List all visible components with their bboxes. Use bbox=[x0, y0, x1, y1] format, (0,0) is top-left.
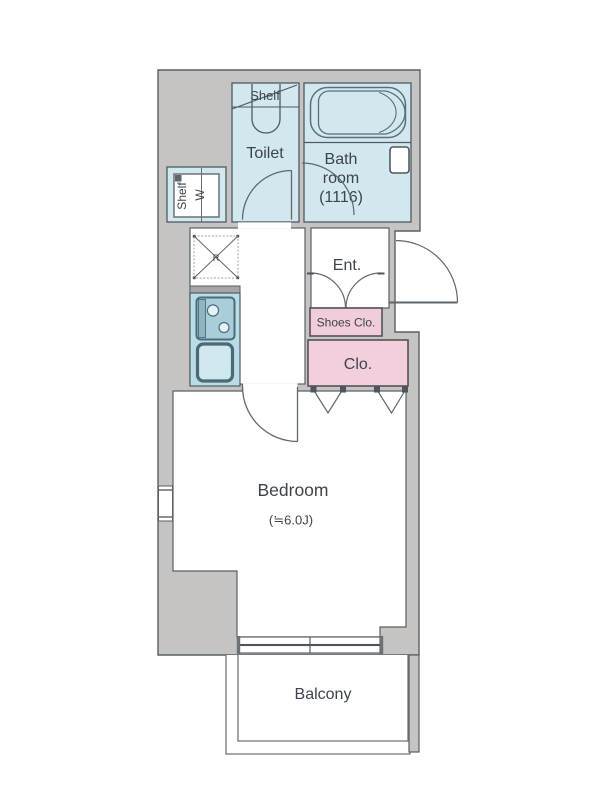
svg-text:Toilet: Toilet bbox=[246, 145, 284, 162]
svg-text:(≒6.0J): (≒6.0J) bbox=[269, 513, 313, 528]
svg-text:Bath: Bath bbox=[325, 151, 358, 168]
svg-text:Clo.: Clo. bbox=[344, 356, 372, 373]
svg-text:R: R bbox=[213, 253, 220, 263]
svg-text:Bedroom: Bedroom bbox=[257, 480, 328, 500]
svg-text:Ent.: Ent. bbox=[333, 257, 361, 274]
svg-text:W: W bbox=[193, 189, 207, 201]
svg-text:Shoes Clo.: Shoes Clo. bbox=[317, 316, 376, 330]
svg-text:Balcony: Balcony bbox=[295, 686, 352, 703]
svg-text:Shelf: Shelf bbox=[175, 182, 189, 210]
svg-text:(1116): (1116) bbox=[319, 189, 363, 206]
svg-text:room: room bbox=[323, 170, 359, 187]
svg-text:Shelf: Shelf bbox=[250, 88, 280, 103]
